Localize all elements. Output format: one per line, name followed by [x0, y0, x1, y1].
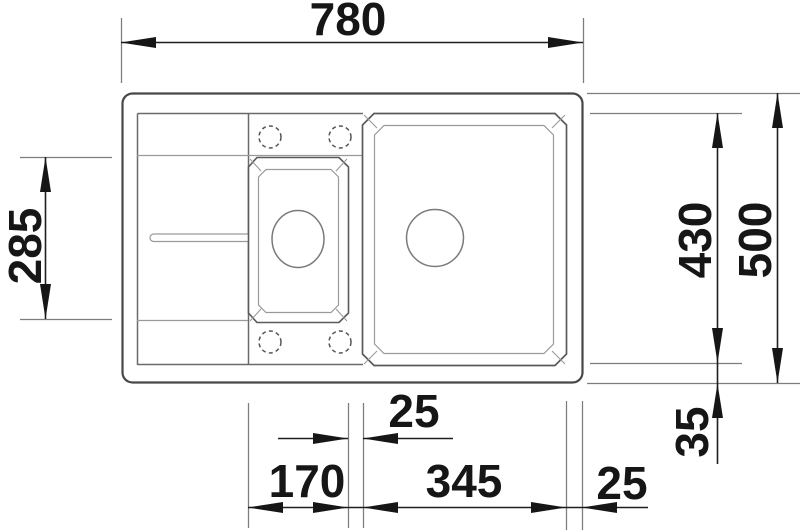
large-bowl [363, 114, 567, 366]
dim-label-bottom-rim: 35 [666, 406, 718, 457]
dim-label-bowl-gap: 25 [388, 385, 439, 437]
drainboard-channel [150, 234, 256, 242]
large-bowl-outer [363, 114, 567, 366]
dim-label-right-rim: 25 [596, 457, 647, 509]
arrow-345-left [363, 502, 398, 513]
arrow-285-top [40, 157, 51, 192]
arrow-430-bottom [712, 328, 723, 363]
arrow-345-right [531, 502, 566, 513]
arrow-500-top [772, 93, 783, 128]
arrow-780-right [548, 37, 583, 48]
arrow-500-bottom [772, 348, 783, 383]
dim-label-overall-depth: 500 [729, 202, 781, 279]
arrow-285-bottom [40, 284, 51, 319]
small-bowl-outer [249, 158, 349, 323]
arrow-25-gap-left [313, 433, 348, 444]
dim-label-overall-width: 780 [310, 0, 387, 45]
dim-label-inner-depth: 430 [669, 202, 721, 279]
sink-technical-drawing: 780 285 430 500 35 25 170 345 25 [0, 0, 800, 532]
dim-label-small-bowl-width: 170 [269, 455, 346, 507]
small-bowl [249, 158, 349, 323]
drawing-canvas: 780 285 430 500 35 25 170 345 25 [0, 0, 800, 532]
dim-label-drainer-bowl-length: 285 [0, 208, 51, 285]
sink-plan [123, 94, 583, 383]
arrow-780-left [121, 37, 156, 48]
dim-label-main-bowl-width: 345 [426, 455, 503, 507]
arrow-430-top [712, 113, 723, 148]
